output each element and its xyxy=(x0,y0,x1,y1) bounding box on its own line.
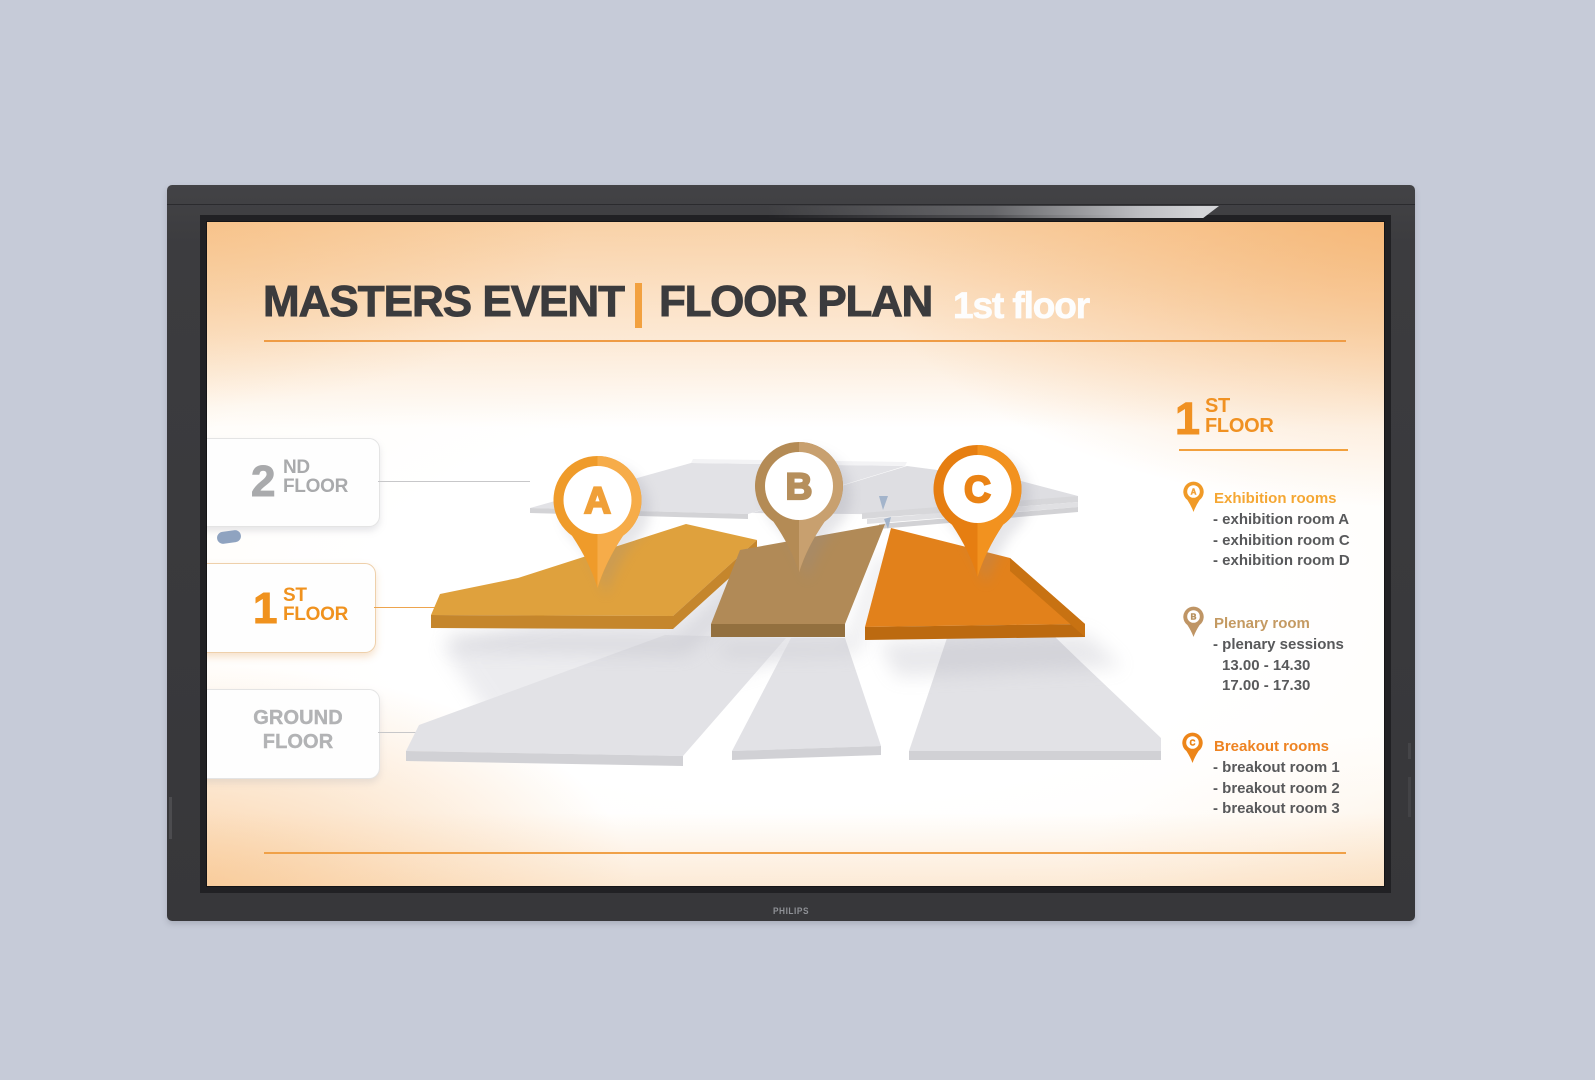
svg-text:B: B xyxy=(1191,613,1197,622)
svg-text:C: C xyxy=(1190,739,1196,748)
svg-text:B: B xyxy=(786,466,813,507)
svg-text:A: A xyxy=(1191,488,1197,497)
svg-text:A: A xyxy=(584,480,611,521)
svg-text:C: C xyxy=(964,469,991,510)
